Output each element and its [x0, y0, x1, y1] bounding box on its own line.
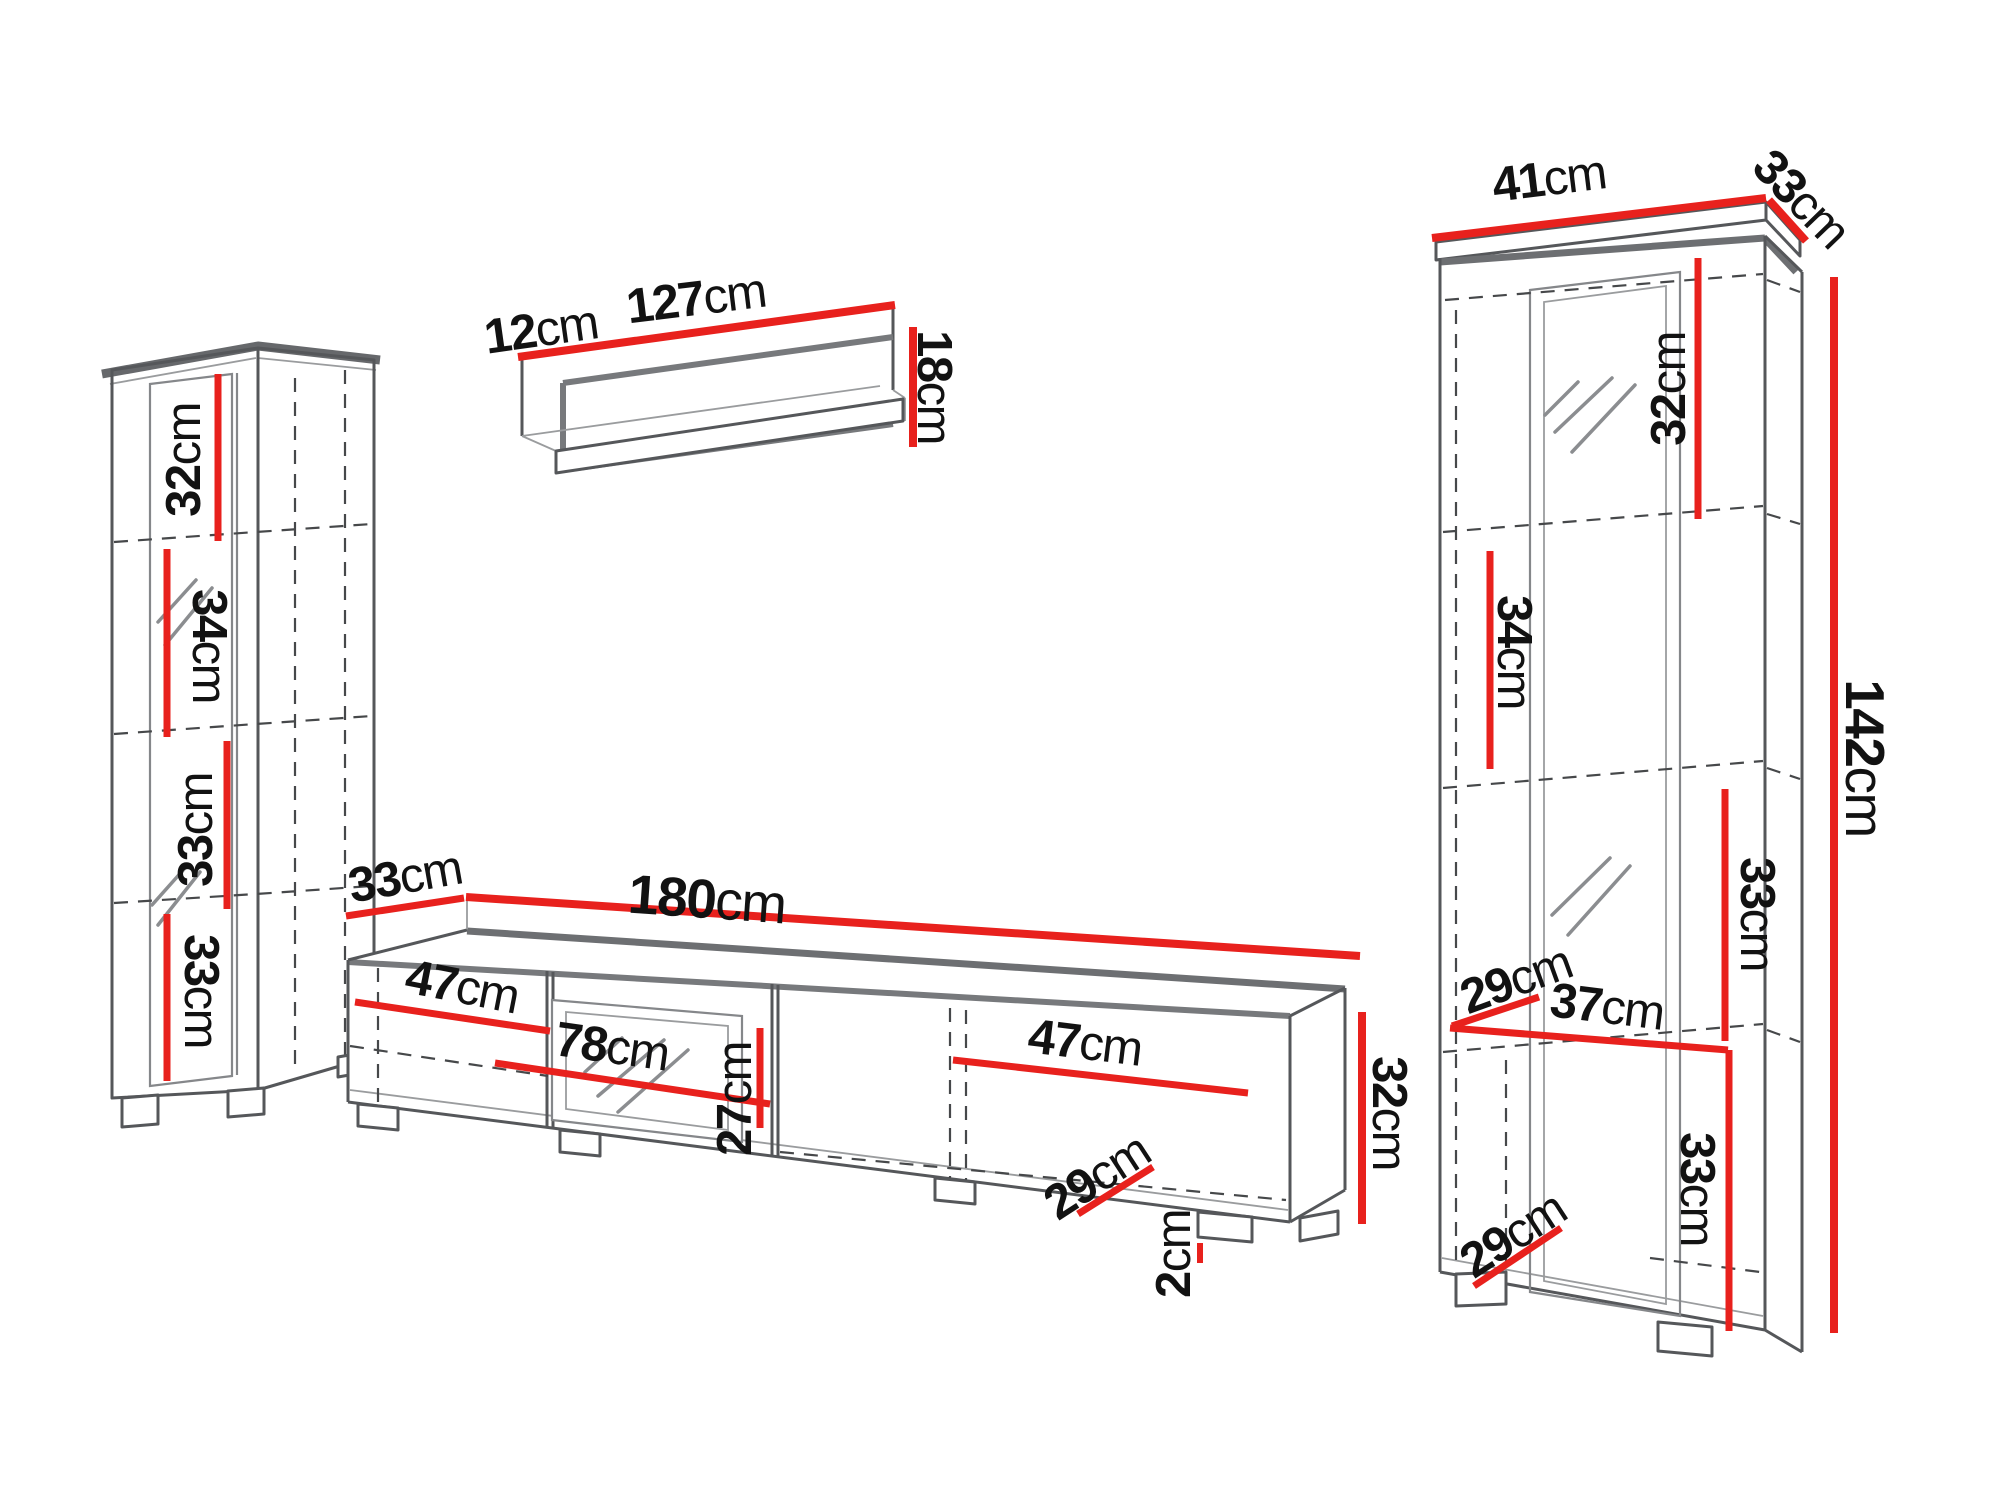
tv-stand	[348, 899, 1345, 1242]
dim-label-tv-height: 32cm	[1362, 1056, 1416, 1170]
dim-label-leftcab-section3: 33cm	[169, 773, 223, 887]
furniture-dimension-diagram: 32cm 34cm 33cm 33cm 12cm 127cm 18cm 33cm…	[0, 0, 1998, 1499]
dim-label-tv-niche-height: 27cm	[708, 1042, 762, 1156]
right-cabinet	[1436, 202, 1802, 1356]
dim-label-leftcab-section1: 32cm	[157, 403, 211, 517]
dim-label-leftcab-section2: 34cm	[182, 589, 236, 703]
dim-label-rightcab-second-section: 34cm	[1487, 595, 1541, 709]
right-cabinet-body	[1436, 202, 1802, 1352]
dim-label-rightcab-height: 142cm	[1834, 679, 1896, 837]
dim-label-leftcab-section4: 33cm	[174, 934, 228, 1048]
dim-label-shelf-height: 18cm	[907, 330, 961, 444]
dim-label-rightcab-width: 41cm	[1489, 145, 1609, 212]
dim-label-rightcab-bottom-section: 33cm	[1670, 1132, 1724, 1246]
diagram-canvas: 32cm 34cm 33cm 33cm 12cm 127cm 18cm 33cm…	[0, 0, 1998, 1499]
dim-label-rightcab-third-section: 33cm	[1730, 857, 1784, 971]
dim-label-tv-width: 180cm	[626, 863, 788, 936]
left-cabinet	[102, 346, 380, 1127]
dim-label-rightcab-top-section: 32cm	[1642, 332, 1696, 446]
dim-label-tv-foot-height: 2cm	[1147, 1210, 1201, 1298]
left-cabinet-body	[112, 348, 374, 1098]
